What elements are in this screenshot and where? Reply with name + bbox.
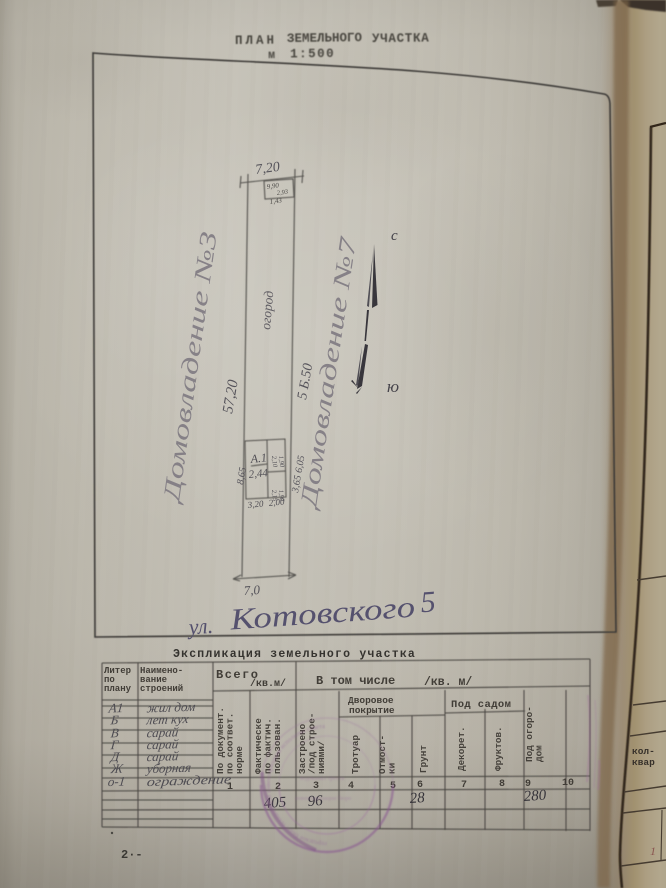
svg-text:2,00: 2,00 [268,496,285,508]
svg-text:дом: дом [534,745,545,762]
svg-text:2,10: 2,10 [270,455,278,468]
svg-text:инвентаризации бюро: инвентаризации бюро [295,795,351,802]
svg-text:ниями/: ниями/ [316,740,327,774]
svg-text:кол-: кол- [632,746,655,757]
svg-text:10: 10 [562,778,574,789]
svg-text:В том числе: В том числе [316,674,395,688]
svg-text:Домовладение №3: Домовладение №3 [159,230,223,506]
svg-text:покрытие: покрытие [349,705,395,716]
svg-text:57,20: 57,20 [220,378,242,415]
svg-text:1,90: 1,90 [277,455,285,468]
svg-text:1,43: 1,43 [269,196,283,206]
svg-text:строений: строений [140,684,183,694]
svg-text:3,20: 3,20 [246,498,264,510]
svg-text:3: 3 [313,781,319,792]
svg-text:5: 5 [419,585,436,619]
svg-text:ю: ю [387,377,399,396]
svg-text:УЧАСТКА: УЧАСТКА [372,32,430,47]
svg-text:водоканал треста: водоканал треста [300,776,344,782]
svg-text:28: 28 [409,790,426,807]
svg-text:Грунт: Грунт [418,745,429,773]
svg-text:2: 2 [275,782,281,793]
svg-text:2,93: 2,93 [276,188,289,197]
svg-text:Котовского: Котовского [228,591,416,637]
svg-text:ЗЕМЕЛЬНОГО: ЗЕМЕЛЬНОГО [287,31,363,46]
svg-text:А.1: А.1 [249,450,268,466]
svg-text:7: 7 [461,780,467,791]
svg-text:квар: квар [632,757,655,768]
svg-text:1: 1 [650,844,656,858]
svg-text:Под садом: Под садом [451,699,511,711]
svg-text:8,65: 8,65 [235,466,249,485]
svg-text:7,0: 7,0 [243,582,261,598]
svg-text:м: м [268,49,276,62]
svg-text:4: 4 [348,781,354,792]
svg-text:Экспликация земельного участка: Экспликация земельного участка [173,648,416,661]
svg-text:/кв.м/: /кв.м/ [250,678,286,690]
svg-text:1:500: 1:500 [290,47,335,61]
svg-text:7,20: 7,20 [254,160,280,178]
svg-text:Декорет.: Декорет. [456,726,467,771]
svg-text:2·-: 2·- [121,848,143,862]
svg-text:ПЛАН: ПЛАН [235,34,277,48]
svg-text:280: 280 [523,787,547,805]
svg-text:плану: плану [104,684,132,694]
svg-text:ограждение: ограждение [146,771,232,789]
svg-text:Тротуар: Тротуар [350,735,361,774]
svg-text:ул.: ул. [186,613,214,640]
svg-text:о-1: о-1 [107,774,126,790]
svg-text:норме: норме [234,746,245,774]
svg-text:с: с [391,228,398,244]
svg-text:8: 8 [499,779,505,790]
svg-text:2,44: 2,44 [248,467,269,481]
svg-text:Фруктов.: Фруктов. [493,726,504,771]
svg-text:огород: огород [258,290,276,330]
svg-text:/кв. м/: /кв. м/ [424,676,472,689]
